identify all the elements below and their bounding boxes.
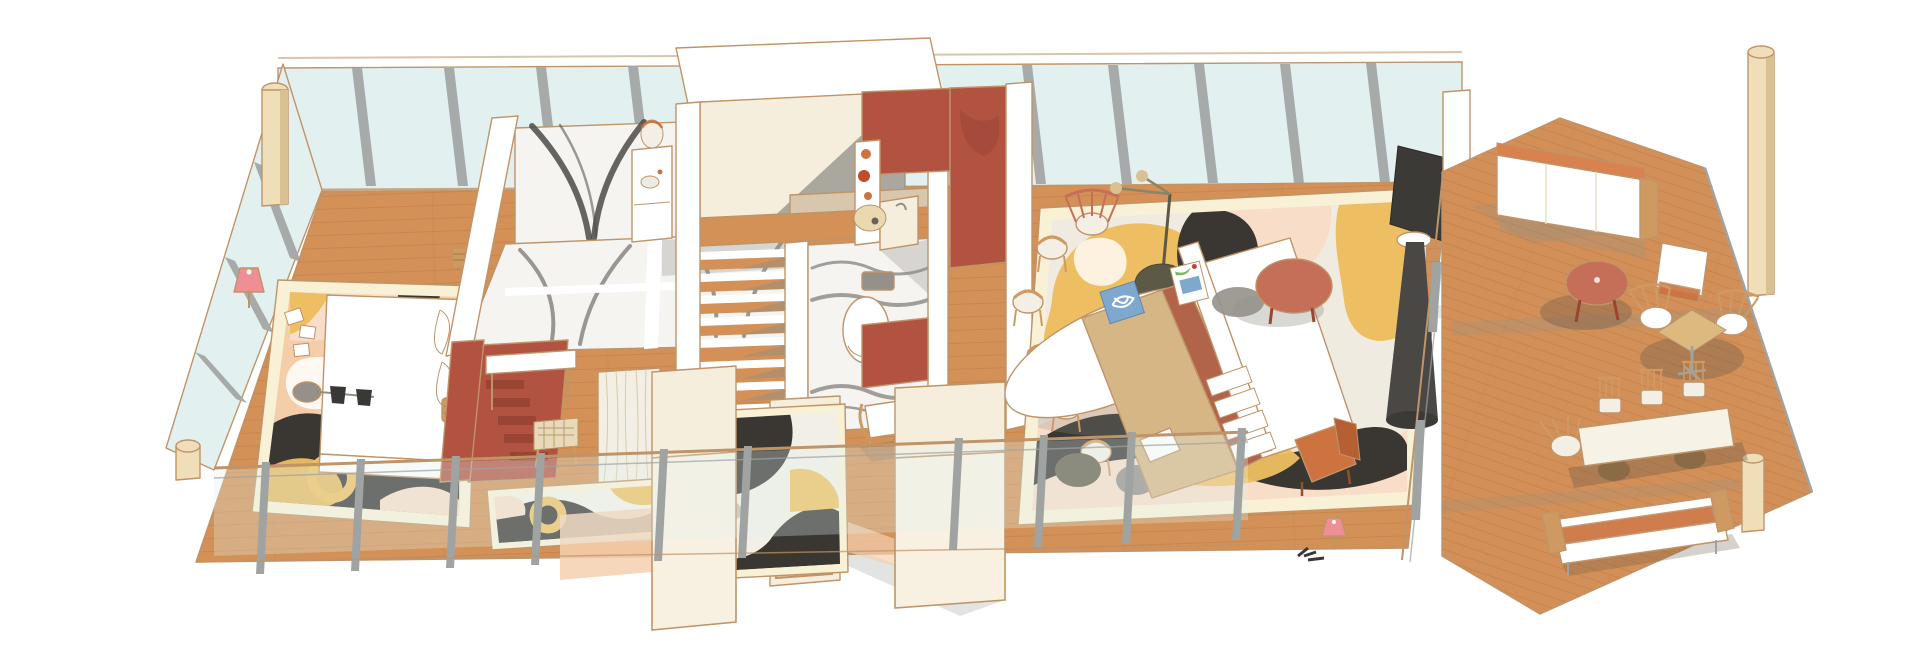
terrace bbox=[1430, 46, 1830, 630]
timber-column-low bbox=[1742, 453, 1764, 532]
corner-column-low-cap bbox=[176, 440, 200, 452]
red-wall bbox=[950, 86, 1008, 268]
cut-wall bbox=[652, 366, 736, 458]
illustration-canvas bbox=[0, 0, 1920, 668]
column-shade bbox=[280, 90, 288, 205]
round-stool bbox=[854, 205, 886, 231]
apartment-axonometric bbox=[0, 0, 1920, 668]
white-lounge-chair bbox=[1656, 243, 1708, 302]
timber-column-tall bbox=[1748, 46, 1774, 296]
red-wall-low bbox=[862, 318, 928, 388]
